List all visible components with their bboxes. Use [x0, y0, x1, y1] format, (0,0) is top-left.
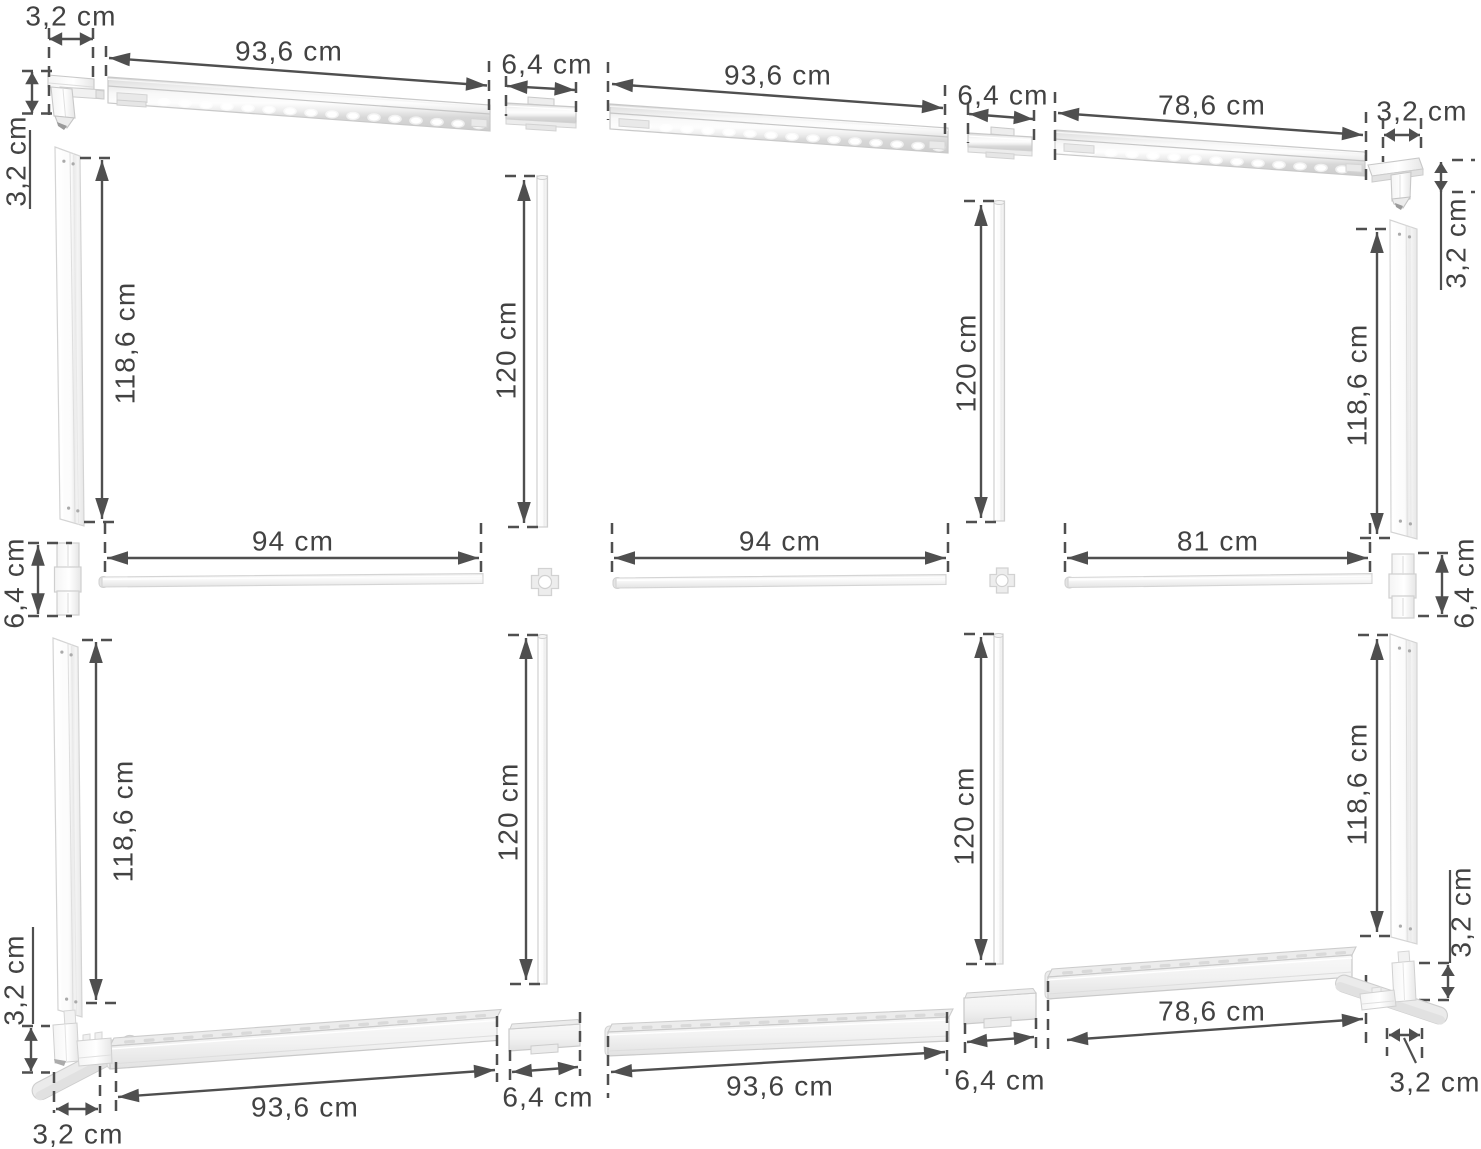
- svg-text:94 cm: 94 cm: [252, 526, 334, 557]
- svg-text:93,6 cm: 93,6 cm: [251, 1092, 359, 1123]
- svg-text:120 cm: 120 cm: [491, 300, 522, 399]
- svg-text:118,6 cm: 118,6 cm: [1342, 723, 1373, 846]
- svg-text:94 cm: 94 cm: [739, 526, 821, 557]
- svg-text:6,4 cm: 6,4 cm: [957, 80, 1048, 111]
- svg-text:118,6 cm: 118,6 cm: [1342, 324, 1373, 447]
- svg-text:3,2 cm: 3,2 cm: [1, 115, 32, 206]
- svg-text:3,2 cm: 3,2 cm: [0, 934, 30, 1025]
- svg-text:6,4 cm: 6,4 cm: [502, 1082, 593, 1113]
- svg-text:3,2 cm: 3,2 cm: [1389, 1067, 1480, 1098]
- svg-text:6,4 cm: 6,4 cm: [501, 49, 592, 80]
- svg-text:3,2 cm: 3,2 cm: [32, 1119, 123, 1149]
- svg-text:6,4 cm: 6,4 cm: [0, 537, 30, 628]
- svg-text:120 cm: 120 cm: [951, 313, 982, 412]
- svg-text:78,6 cm: 78,6 cm: [1158, 90, 1266, 121]
- svg-text:118,6 cm: 118,6 cm: [110, 282, 141, 405]
- svg-text:78,6 cm: 78,6 cm: [1158, 996, 1266, 1027]
- svg-text:93,6 cm: 93,6 cm: [724, 60, 832, 91]
- svg-text:81 cm: 81 cm: [1177, 526, 1259, 557]
- svg-text:120 cm: 120 cm: [493, 762, 524, 861]
- svg-text:3,2 cm: 3,2 cm: [25, 1, 116, 32]
- svg-text:3,2 cm: 3,2 cm: [1441, 197, 1472, 288]
- svg-text:6,4 cm: 6,4 cm: [954, 1065, 1045, 1096]
- svg-text:93,6 cm: 93,6 cm: [726, 1071, 834, 1102]
- svg-text:120 cm: 120 cm: [949, 766, 980, 865]
- svg-text:6,4 cm: 6,4 cm: [1449, 537, 1480, 628]
- svg-text:93,6 cm: 93,6 cm: [235, 36, 343, 67]
- svg-text:118,6 cm: 118,6 cm: [108, 760, 139, 883]
